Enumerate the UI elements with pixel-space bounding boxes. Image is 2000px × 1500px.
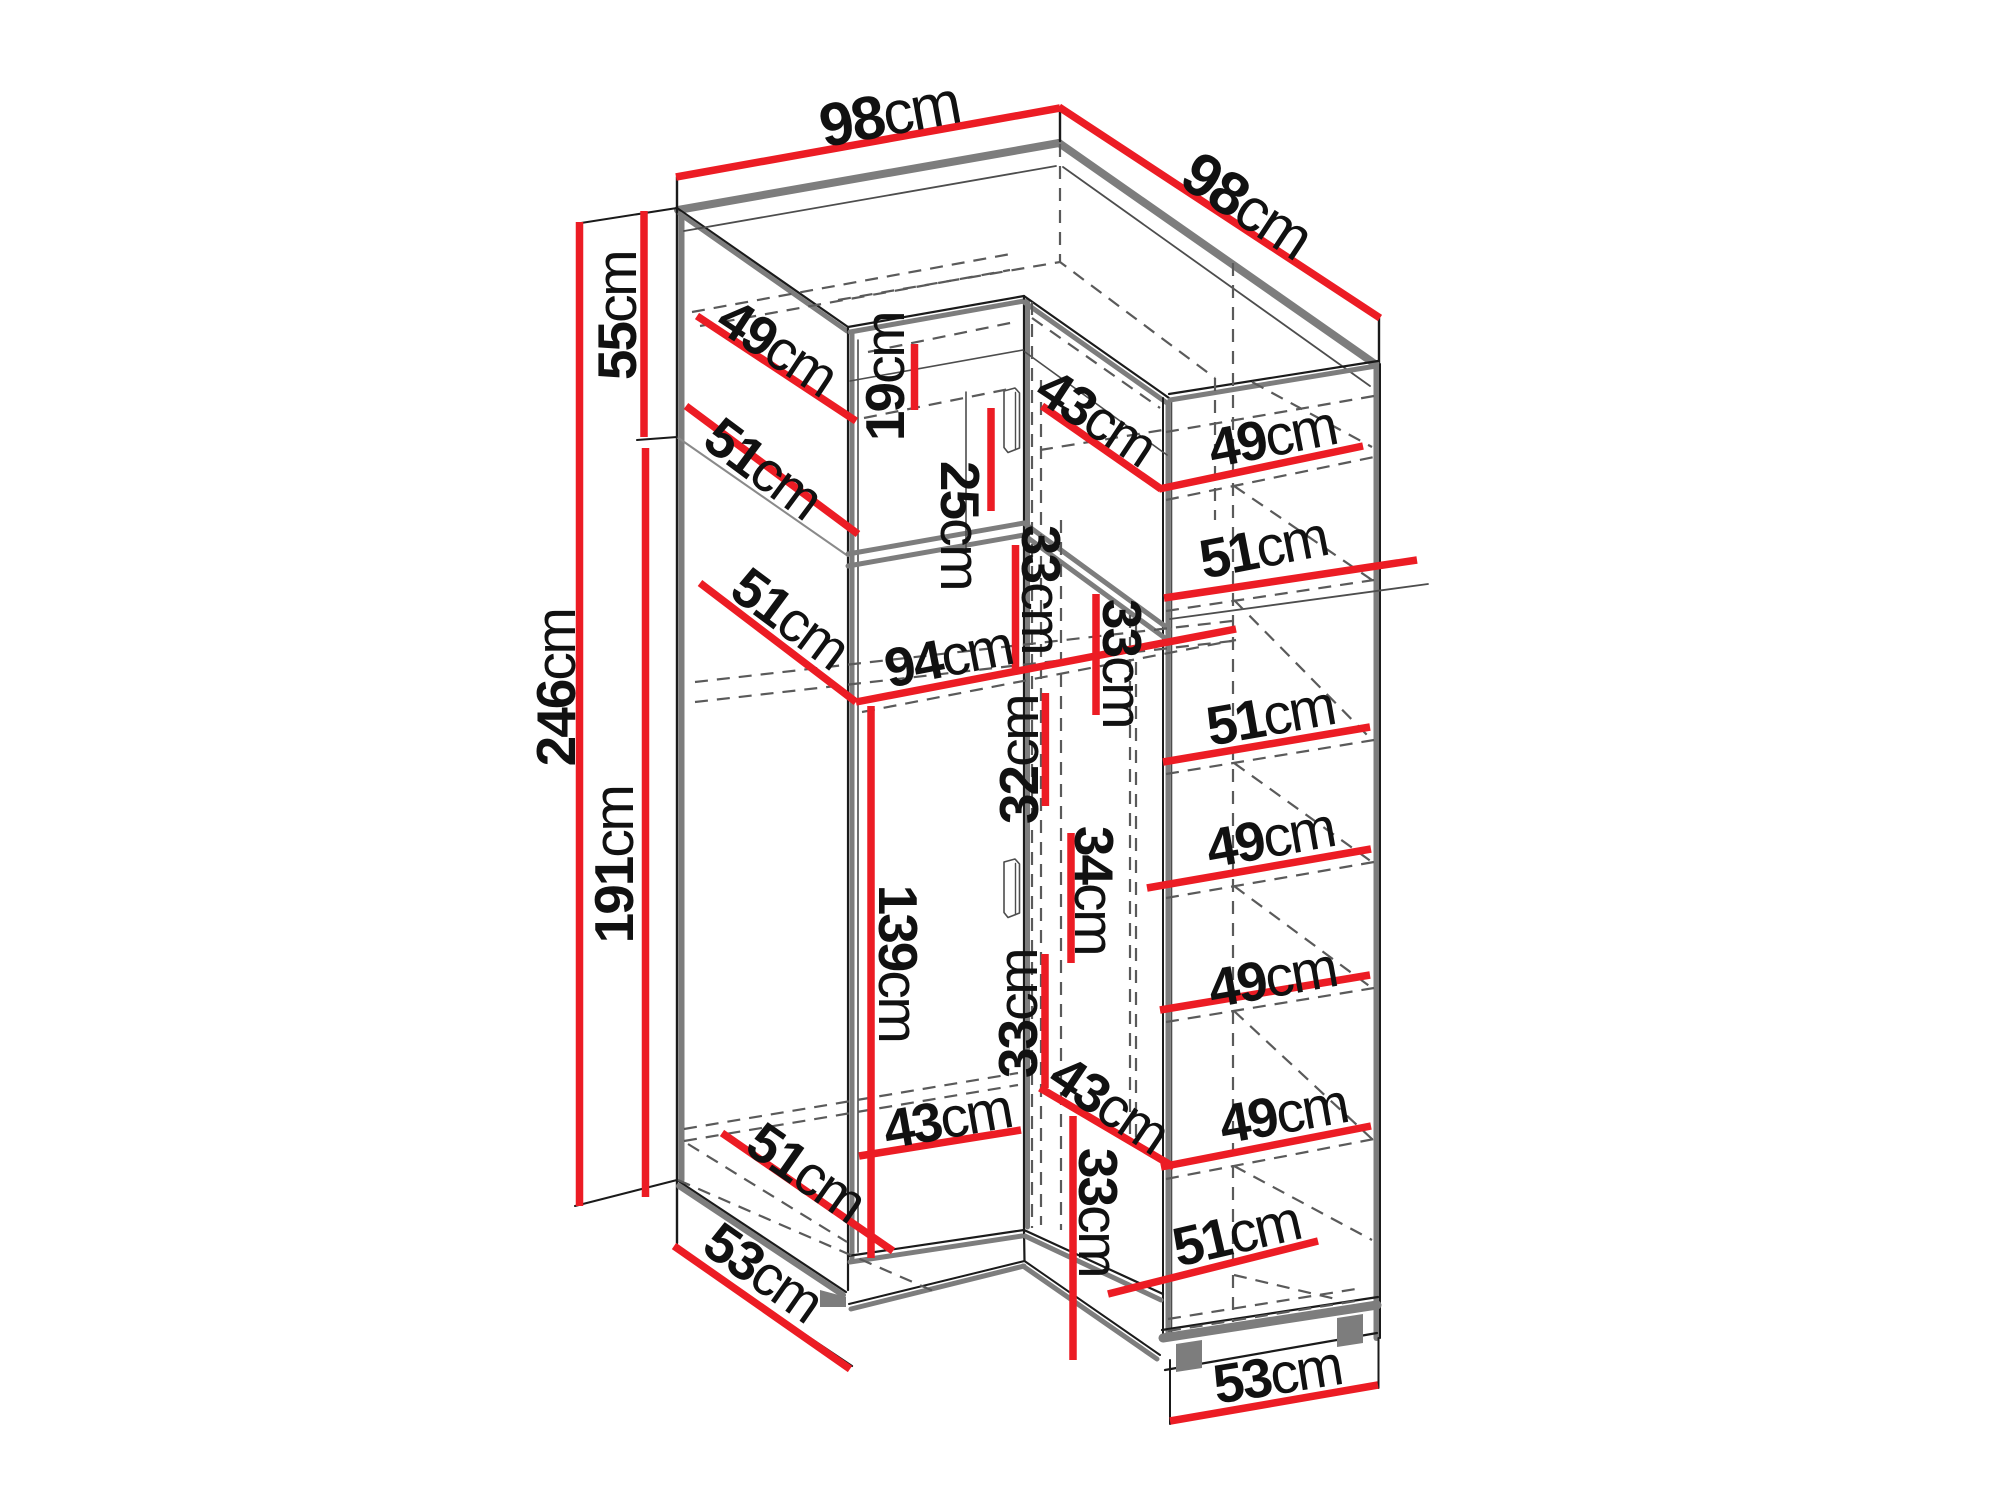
svg-text:32cm: 32cm <box>987 696 1051 824</box>
svg-text:33cm: 33cm <box>1066 1148 1130 1276</box>
svg-text:139cm: 139cm <box>866 885 930 1042</box>
svg-text:19cm: 19cm <box>853 313 917 441</box>
svg-text:34cm: 34cm <box>1062 826 1126 954</box>
svg-text:25cm: 25cm <box>928 461 992 589</box>
svg-text:33cm: 33cm <box>1009 525 1073 653</box>
svg-text:33cm: 33cm <box>986 950 1050 1078</box>
svg-text:33cm: 33cm <box>1090 599 1154 727</box>
svg-text:191cm: 191cm <box>582 787 646 944</box>
svg-text:246cm: 246cm <box>524 610 588 767</box>
svg-text:55cm: 55cm <box>585 252 649 380</box>
